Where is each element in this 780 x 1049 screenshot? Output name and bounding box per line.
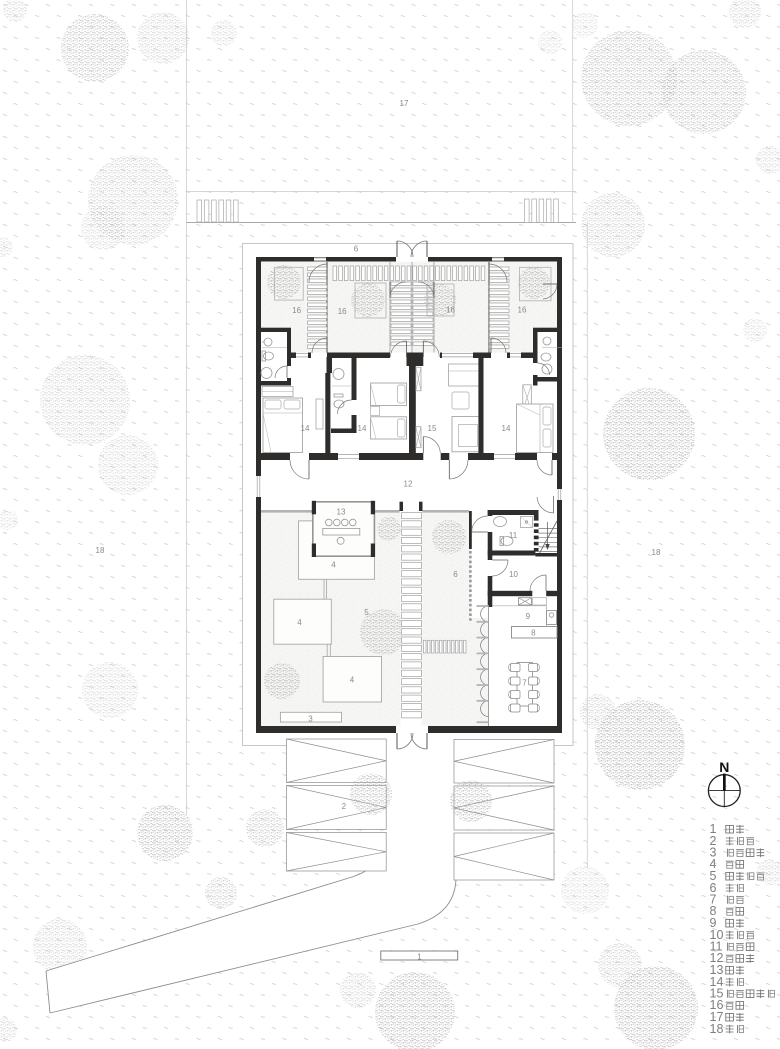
svg-text:15: 15 (428, 424, 437, 433)
svg-text:3: 3 (308, 715, 313, 724)
svg-text:8: 8 (531, 629, 536, 638)
svg-text:6: 6 (453, 570, 458, 579)
svg-text:17: 17 (400, 99, 409, 108)
svg-text:4: 4 (350, 676, 355, 685)
svg-text:16: 16 (446, 306, 455, 315)
svg-text:1: 1 (417, 953, 422, 962)
svg-text:18: 18 (710, 1022, 724, 1036)
svg-text:7: 7 (522, 679, 527, 688)
svg-text:18: 18 (96, 546, 105, 555)
svg-text:14: 14 (358, 424, 367, 433)
svg-text:16: 16 (292, 306, 301, 315)
svg-text:16: 16 (518, 306, 527, 315)
svg-text:18: 18 (652, 548, 661, 557)
svg-text:6: 6 (354, 245, 359, 254)
svg-text:10: 10 (509, 570, 518, 579)
svg-text:4: 4 (297, 618, 302, 627)
svg-text:14: 14 (502, 424, 511, 433)
svg-text:16: 16 (338, 307, 347, 316)
svg-text:9: 9 (526, 612, 531, 621)
svg-text:4: 4 (331, 561, 336, 570)
svg-text:2: 2 (342, 802, 347, 811)
svg-text:N: N (719, 759, 729, 775)
svg-text:11: 11 (509, 531, 518, 540)
svg-text:14: 14 (301, 424, 310, 433)
svg-text:13: 13 (337, 508, 346, 517)
svg-text:12: 12 (404, 480, 413, 489)
